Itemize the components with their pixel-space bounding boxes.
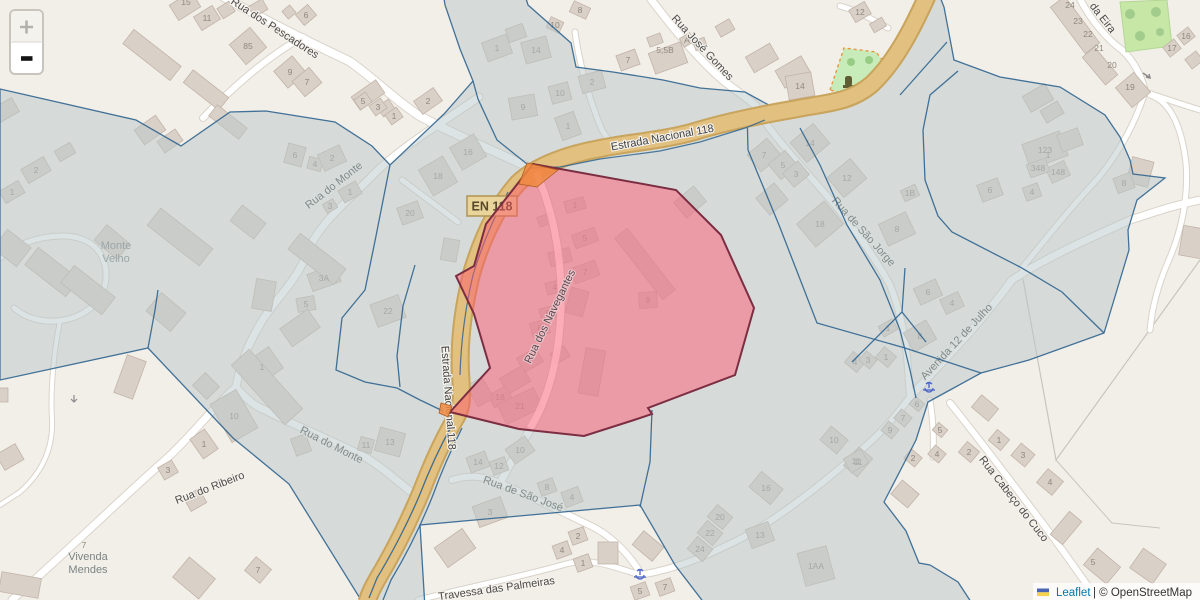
svg-text:3: 3 [166, 465, 171, 475]
svg-text:5,5B: 5,5B [656, 45, 674, 55]
svg-text:4: 4 [1048, 477, 1053, 487]
svg-text:Vivenda: Vivenda [68, 551, 108, 563]
svg-text:85: 85 [243, 41, 253, 51]
svg-text:24: 24 [1065, 0, 1075, 10]
svg-text:5: 5 [938, 425, 943, 435]
svg-text:5: 5 [1091, 557, 1096, 567]
svg-text:2: 2 [576, 531, 581, 541]
svg-text:| © OpenStreetMap: | © OpenStreetMap [1093, 587, 1192, 599]
svg-text:5: 5 [361, 96, 366, 106]
svg-text:4: 4 [560, 545, 565, 555]
svg-text:Leaflet: Leaflet [1056, 587, 1091, 599]
svg-text:Mendes: Mendes [68, 564, 108, 576]
svg-text:2: 2 [426, 96, 431, 106]
svg-text:3: 3 [1021, 450, 1026, 460]
svg-text:23: 23 [1073, 16, 1083, 26]
svg-text:1: 1 [581, 558, 586, 568]
svg-text:7: 7 [256, 565, 261, 575]
svg-text:14: 14 [795, 81, 805, 91]
svg-text:11: 11 [203, 13, 212, 23]
svg-text:4: 4 [935, 449, 940, 459]
svg-text:16: 16 [1181, 31, 1191, 41]
svg-text:17: 17 [1167, 43, 1177, 53]
svg-text:7: 7 [305, 77, 310, 87]
svg-text:2: 2 [967, 447, 972, 457]
svg-text:9: 9 [288, 67, 293, 77]
svg-text:8: 8 [578, 5, 583, 15]
svg-text:7: 7 [82, 540, 87, 550]
svg-text:15: 15 [181, 0, 191, 7]
svg-text:22: 22 [1083, 29, 1093, 39]
svg-text:20: 20 [1107, 60, 1117, 70]
svg-text:19: 19 [1125, 82, 1135, 92]
svg-text:5: 5 [638, 586, 643, 596]
svg-text:12: 12 [855, 7, 865, 17]
svg-text:1: 1 [997, 435, 1002, 445]
svg-text:3: 3 [376, 102, 381, 112]
svg-text:2: 2 [911, 453, 916, 463]
svg-text:1: 1 [202, 439, 207, 449]
svg-text:1: 1 [392, 111, 397, 121]
svg-text:7: 7 [663, 582, 668, 592]
svg-text:6: 6 [304, 10, 309, 20]
svg-text:21: 21 [1094, 43, 1104, 53]
svg-text:7: 7 [626, 55, 631, 65]
